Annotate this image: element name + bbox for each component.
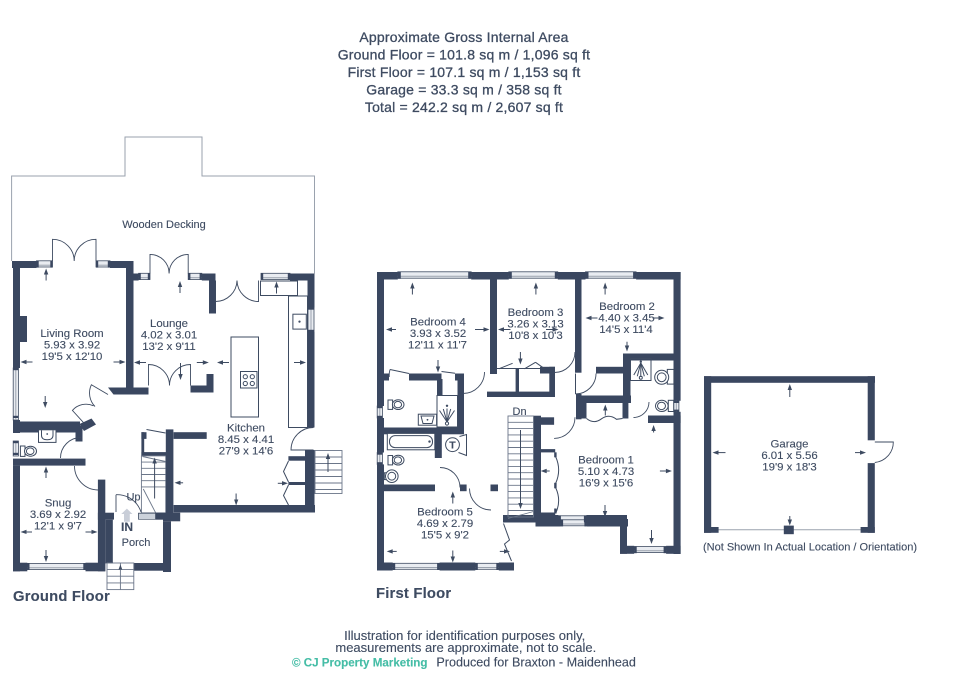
svg-text:Ground Floor: Ground Floor <box>13 589 110 605</box>
svg-text:Bedroom 4: Bedroom 4 <box>410 317 466 329</box>
svg-text:Total = 242.2 sq m / 2,607 sq: Total = 242.2 sq m / 2,607 sq ft <box>365 99 563 115</box>
svg-text:10'8 x 10'3: 10'8 x 10'3 <box>508 330 562 342</box>
svg-text:Garage: Garage <box>771 439 809 451</box>
svg-text:Approximate Gross Internal Are: Approximate Gross Internal Area <box>359 29 568 45</box>
svg-text:13'2 x 9'11: 13'2 x 9'11 <box>142 341 196 353</box>
svg-text:5.10 x 4.73: 5.10 x 4.73 <box>578 466 634 478</box>
svg-text:19'5 x 12'10: 19'5 x 12'10 <box>42 351 103 363</box>
svg-text:Ground Floor = 101.8 sq m / 1,: Ground Floor = 101.8 sq m / 1,096 sq ft <box>338 47 591 63</box>
svg-text:4.69 x 2.79: 4.69 x 2.79 <box>417 518 473 530</box>
svg-text:Lounge: Lounge <box>150 318 188 330</box>
svg-text:Kitchen: Kitchen <box>227 423 265 435</box>
svg-text:Porch: Porch <box>122 537 151 549</box>
svg-text:Snug: Snug <box>45 498 72 510</box>
svg-text:IN: IN <box>121 520 133 534</box>
svg-text:Bedroom 1: Bedroom 1 <box>578 455 634 467</box>
svg-text:measurements are approximate,: measurements are approximate, not to sca… <box>335 640 596 655</box>
svg-text:First Floor: First Floor <box>376 586 451 602</box>
svg-text:15'5 x 9'2: 15'5 x 9'2 <box>421 530 469 542</box>
svg-text:Produced for Braxton - Maidenh: Produced for Braxton - Maidenhead <box>436 656 636 670</box>
svg-text:12'11 x 11'7: 12'11 x 11'7 <box>408 340 467 352</box>
svg-text:(Not Shown In Actual Location: (Not Shown In Actual Location / Orientat… <box>703 542 917 554</box>
svg-text:Bedroom 5: Bedroom 5 <box>417 507 473 519</box>
svg-text:19'9 x 18'3: 19'9 x 18'3 <box>762 462 816 474</box>
svg-text:First Floor = 107.1 sq m / 1,1: First Floor = 107.1 sq m / 1,153 sq ft <box>348 64 581 80</box>
svg-text:5.93 x 3.92: 5.93 x 3.92 <box>44 340 100 352</box>
svg-text:4.02 x 3.01: 4.02 x 3.01 <box>141 330 197 342</box>
svg-text:16'9 x 15'6: 16'9 x 15'6 <box>579 478 633 490</box>
svg-text:3.69 x 2.92: 3.69 x 2.92 <box>30 509 86 521</box>
svg-text:Garage = 33.3 sq m / 358 sq ft: Garage = 33.3 sq m / 358 sq ft <box>366 81 562 97</box>
svg-text:© CJ Property Marketing: © CJ Property Marketing <box>292 657 427 670</box>
svg-text:4.40 x 3.45: 4.40 x 3.45 <box>598 313 654 325</box>
svg-text:Living Room: Living Room <box>40 328 103 340</box>
svg-text:T: T <box>449 440 456 452</box>
svg-text:3.93 x 3.52: 3.93 x 3.52 <box>410 328 466 340</box>
svg-text:Bedroom 2: Bedroom 2 <box>599 301 655 313</box>
svg-text:6.01 x 5.56: 6.01 x 5.56 <box>761 450 817 462</box>
svg-text:Bedroom 3: Bedroom 3 <box>508 307 564 319</box>
svg-text:Dn: Dn <box>513 406 527 418</box>
svg-text:8.45 x 4.41: 8.45 x 4.41 <box>218 434 274 446</box>
svg-text:Wooden Decking: Wooden Decking <box>122 219 206 231</box>
svg-text:12'1 x 9'7: 12'1 x 9'7 <box>34 521 82 533</box>
svg-text:27'9 x 14'6: 27'9 x 14'6 <box>219 446 273 458</box>
svg-text:14'5 x 11'4: 14'5 x 11'4 <box>599 324 653 336</box>
